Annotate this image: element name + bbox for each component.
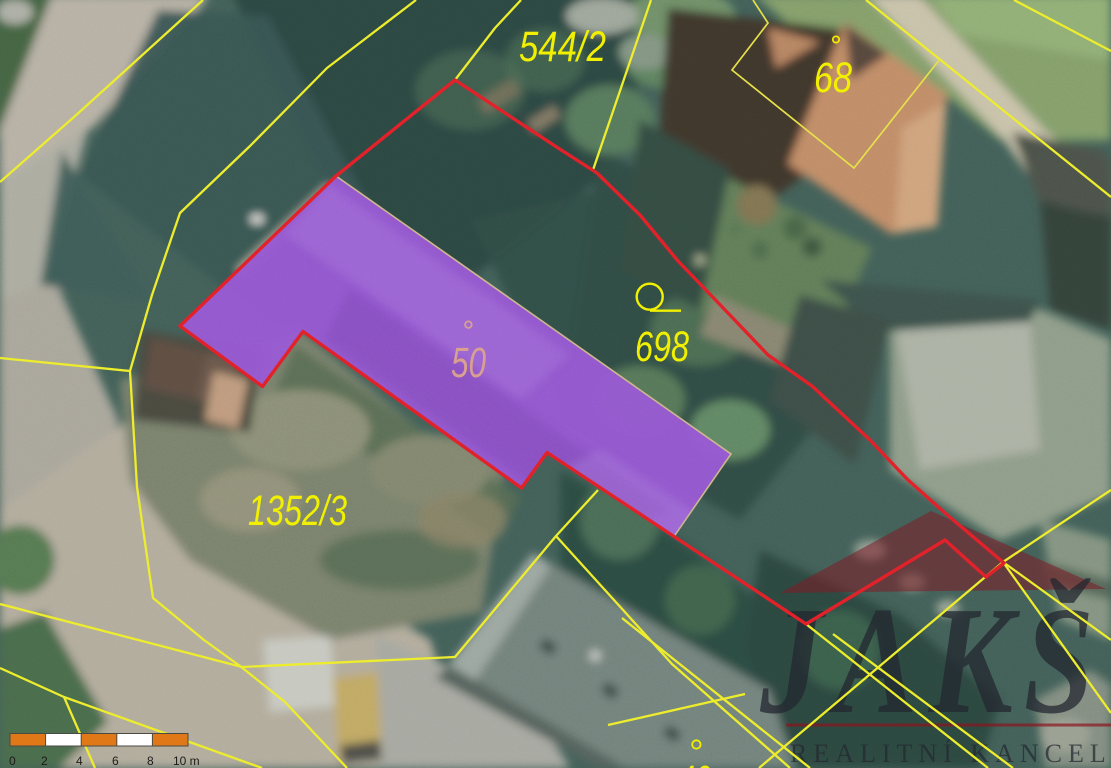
svg-text:0: 0 [9,754,16,768]
svg-text:JAKŠ: JAKŠ [759,576,1104,746]
svg-text:50: 50 [451,338,486,386]
svg-text:4: 4 [76,754,83,768]
svg-text:6: 6 [112,754,119,768]
svg-text:68: 68 [814,54,852,102]
svg-text:1352/3: 1352/3 [248,488,347,535]
svg-text:698: 698 [635,324,689,371]
svg-text:REALITNÍ KANCELÁŘ: REALITNÍ KANCELÁŘ [790,739,1111,768]
svg-text:8: 8 [147,754,154,768]
svg-text:10 m: 10 m [173,754,200,768]
svg-text:2: 2 [41,754,48,768]
svg-text:544/2: 544/2 [519,24,606,71]
svg-text:49: 49 [678,756,712,768]
